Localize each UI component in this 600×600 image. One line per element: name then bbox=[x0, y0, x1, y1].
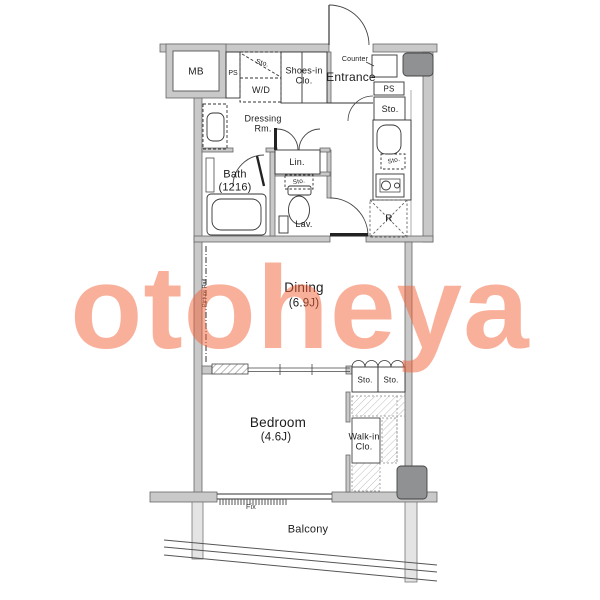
lavatory-cabinet bbox=[279, 216, 288, 233]
label-meter-box: MB bbox=[188, 66, 203, 78]
label-walk-in-closet: Walk-in Clo. bbox=[348, 432, 379, 453]
label-bedroom-size: (4.6J) bbox=[261, 431, 292, 444]
label-storage-closet-2: Sto. bbox=[383, 375, 398, 384]
label-washer-dryer: W/D bbox=[252, 85, 270, 95]
storage-door-arc bbox=[348, 96, 373, 121]
label-refrigerator: R bbox=[385, 213, 392, 225]
label-entrance: Entrance bbox=[326, 71, 376, 85]
bath-shelf bbox=[206, 158, 214, 192]
entrance-door-arc bbox=[329, 5, 369, 45]
balcony-railing bbox=[164, 540, 437, 581]
label-bedroom: Bedroom bbox=[250, 415, 306, 431]
label-dressing-room: Dressing Rm. bbox=[244, 114, 281, 135]
sliding-partition bbox=[212, 364, 350, 375]
label-picture-rail: Picture Rail bbox=[202, 279, 208, 307]
label-bath: Bath (1216) bbox=[219, 168, 252, 193]
floor-plan: MB PS Sto. W/D Shoes-in Clo. Entrance Co… bbox=[0, 0, 600, 600]
label-balcony: Balcony bbox=[288, 524, 329, 537]
label-lavatory: Lav. bbox=[295, 219, 312, 229]
label-shoes-closet: Shoes-in Clo. bbox=[285, 66, 322, 87]
label-linen: Lin. bbox=[289, 157, 304, 167]
label-fix-window: Fix bbox=[246, 504, 256, 512]
washbasin-icon bbox=[207, 113, 224, 141]
label-storage-closet-1: Sto. bbox=[357, 375, 372, 384]
bathtub-inner bbox=[212, 199, 261, 230]
bedroom-window bbox=[217, 494, 332, 505]
label-dining-size: (6.9J) bbox=[289, 297, 320, 310]
label-pipe-space-left: PS bbox=[228, 70, 237, 78]
label-storage-right: Sto. bbox=[382, 104, 399, 114]
balcony-posts bbox=[192, 502, 417, 582]
toilet-tank bbox=[288, 186, 311, 195]
lavatory-door-arc bbox=[330, 198, 368, 237]
label-dining: Dining bbox=[284, 280, 323, 296]
folding-door-arcs bbox=[352, 361, 404, 368]
label-counter: Counter bbox=[342, 56, 368, 64]
label-pipe-space-right: PS bbox=[383, 84, 394, 93]
